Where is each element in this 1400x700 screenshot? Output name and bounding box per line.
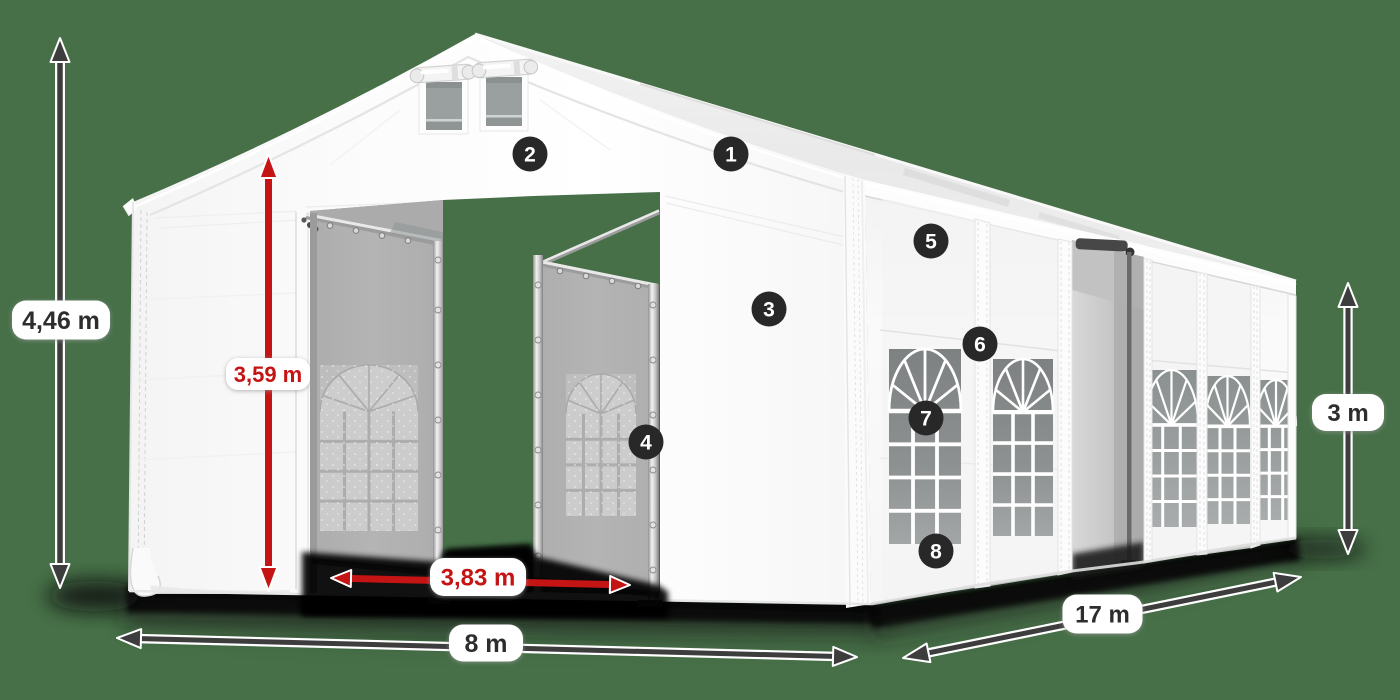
svg-text:3 m: 3 m xyxy=(1327,400,1368,427)
svg-text:7: 7 xyxy=(920,408,932,431)
svg-text:3,83 m: 3,83 m xyxy=(441,565,516,592)
svg-text:5: 5 xyxy=(925,231,937,254)
svg-text:8 m: 8 m xyxy=(464,630,507,658)
svg-text:4,46 m: 4,46 m xyxy=(22,307,100,335)
svg-text:2: 2 xyxy=(524,144,536,167)
svg-text:3,59 m: 3,59 m xyxy=(234,362,303,387)
svg-text:1: 1 xyxy=(725,144,737,167)
svg-text:4: 4 xyxy=(640,432,652,455)
svg-text:3: 3 xyxy=(763,299,775,322)
svg-text:17 m: 17 m xyxy=(1075,602,1130,629)
svg-text:8: 8 xyxy=(930,541,942,564)
svg-text:6: 6 xyxy=(974,334,986,357)
